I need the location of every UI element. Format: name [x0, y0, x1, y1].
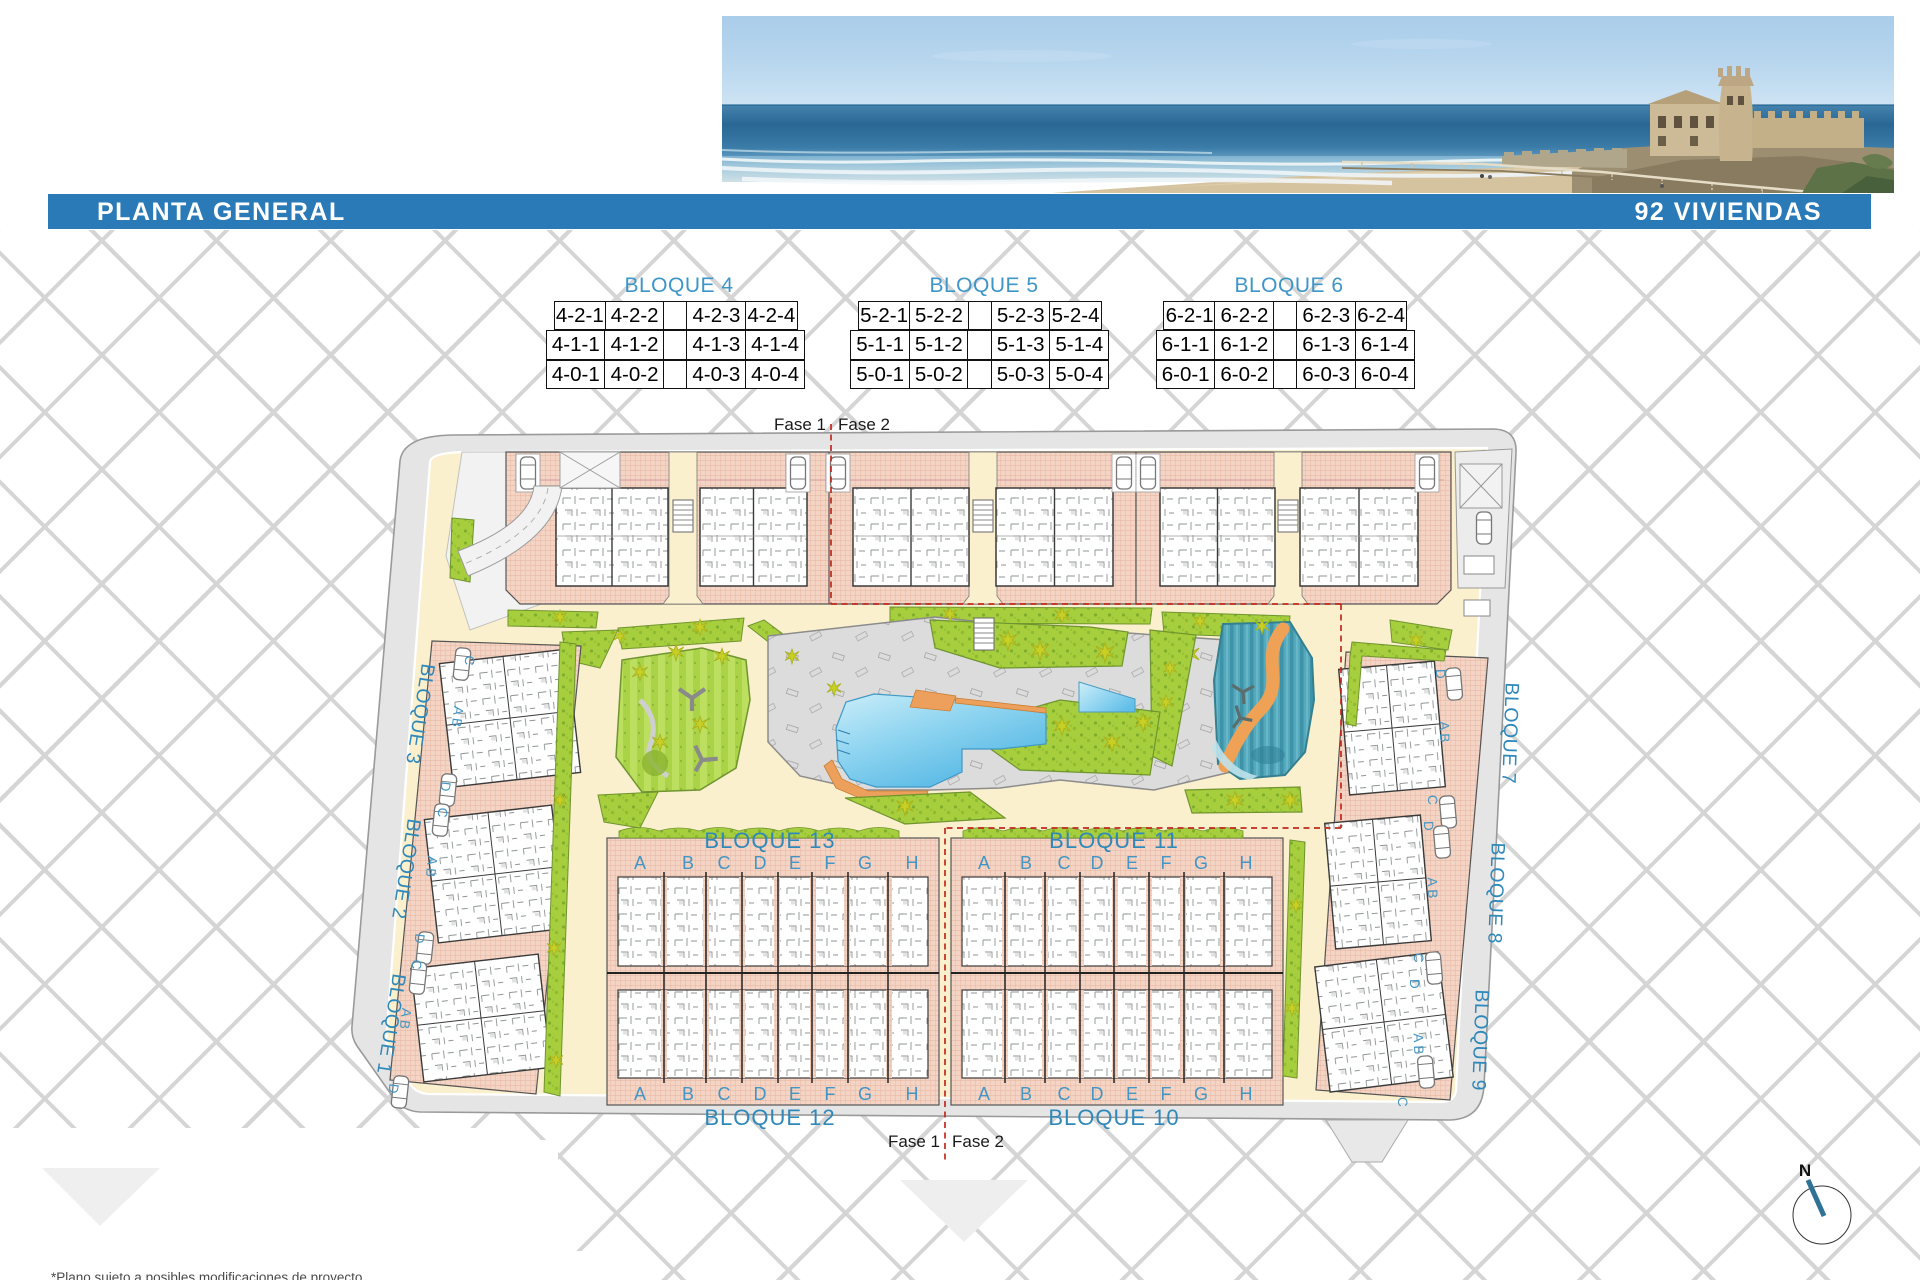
- svg-text:F: F: [1161, 853, 1172, 873]
- svg-text:D: D: [1407, 979, 1422, 990]
- svg-text:B: B: [682, 853, 694, 873]
- svg-text:D: D: [1091, 1084, 1104, 1104]
- svg-text:C: C: [718, 1084, 731, 1104]
- svg-text:D: D: [1433, 669, 1448, 680]
- svg-text:G: G: [858, 853, 872, 873]
- svg-text:A: A: [634, 1084, 646, 1104]
- svg-text:BLOQUE 7: BLOQUE 7: [1497, 682, 1523, 784]
- svg-text:G: G: [858, 1084, 872, 1104]
- svg-text:BLOQUE 9: BLOQUE 9: [1467, 989, 1493, 1091]
- svg-text:B: B: [682, 1084, 694, 1104]
- svg-text:BLOQUE 10: BLOQUE 10: [1048, 1105, 1179, 1130]
- svg-text:E: E: [1126, 853, 1138, 873]
- svg-text:BLOQUE 8: BLOQUE 8: [1483, 842, 1509, 944]
- svg-text:D: D: [385, 1083, 401, 1095]
- svg-text:D: D: [1421, 821, 1436, 832]
- svg-text:E: E: [789, 853, 801, 873]
- svg-text:H: H: [1240, 1084, 1253, 1104]
- svg-text:A: A: [634, 853, 646, 873]
- svg-text:C: C: [1411, 953, 1426, 964]
- svg-text:E: E: [1126, 1084, 1138, 1104]
- svg-text:G: G: [1194, 1084, 1208, 1104]
- svg-text:N: N: [1799, 1161, 1811, 1180]
- svg-text:Fase 1: Fase 1: [888, 1132, 940, 1151]
- svg-text:D: D: [754, 853, 767, 873]
- svg-text:Fase 2: Fase 2: [838, 415, 890, 434]
- svg-text:G: G: [1194, 853, 1208, 873]
- svg-text:H: H: [1240, 853, 1253, 873]
- svg-text:C: C: [718, 853, 731, 873]
- svg-text:A: A: [978, 853, 990, 873]
- svg-text:A B: A B: [449, 705, 466, 728]
- svg-text:A B: A B: [1411, 1033, 1427, 1055]
- svg-text:Fase 2: Fase 2: [952, 1132, 1004, 1151]
- svg-text:D: D: [1091, 853, 1104, 873]
- svg-text:C: C: [1425, 795, 1440, 806]
- svg-text:B: B: [1020, 853, 1032, 873]
- svg-text:B: B: [1020, 1084, 1032, 1104]
- svg-text:Fase 1: Fase 1: [774, 415, 826, 434]
- svg-text:BLOQUE 13: BLOQUE 13: [704, 828, 835, 853]
- svg-text:F: F: [825, 853, 836, 873]
- svg-text:C: C: [1058, 853, 1071, 873]
- svg-text:E: E: [789, 1084, 801, 1104]
- svg-text:F: F: [1161, 1084, 1172, 1104]
- svg-text:A B: A B: [1437, 721, 1453, 743]
- svg-text:BLOQUE 11: BLOQUE 11: [1049, 828, 1179, 853]
- svg-text:C: C: [1058, 1084, 1071, 1104]
- svg-text:H: H: [906, 1084, 919, 1104]
- svg-text:D: D: [754, 1084, 767, 1104]
- svg-text:A: A: [978, 1084, 990, 1104]
- svg-text:H: H: [906, 853, 919, 873]
- svg-text:C: C: [1395, 1097, 1410, 1108]
- svg-text:A B: A B: [1425, 877, 1441, 899]
- svg-text:A B: A B: [423, 855, 440, 878]
- svg-text:F: F: [825, 1084, 836, 1104]
- svg-text:BLOQUE 12: BLOQUE 12: [704, 1105, 835, 1130]
